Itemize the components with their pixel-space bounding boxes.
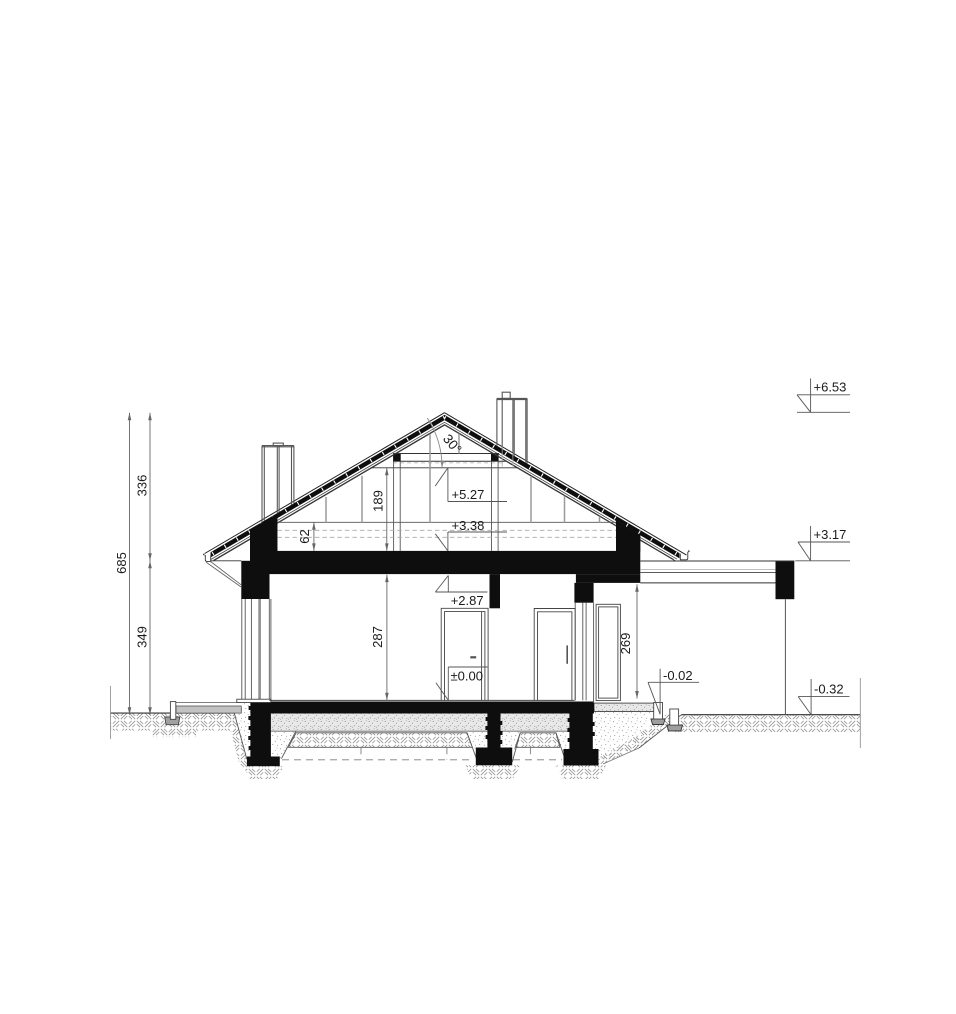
svg-text:287: 287 <box>370 626 385 648</box>
svg-text:269: 269 <box>618 633 633 655</box>
svg-text:336: 336 <box>135 475 150 497</box>
svg-text:+3.17: +3.17 <box>814 527 847 542</box>
svg-text:+6.53: +6.53 <box>814 380 847 395</box>
svg-text:+5.27: +5.27 <box>452 487 485 502</box>
svg-text:349: 349 <box>135 626 150 648</box>
svg-text:+2.87: +2.87 <box>451 593 484 608</box>
svg-text:62: 62 <box>297 529 312 543</box>
svg-text:-0.02: -0.02 <box>663 668 693 683</box>
svg-text:±0.00: ±0.00 <box>451 668 483 683</box>
svg-text:+3.38: +3.38 <box>452 518 485 533</box>
svg-text:189: 189 <box>371 490 386 512</box>
svg-text:-0.32: -0.32 <box>814 681 844 696</box>
svg-text:685: 685 <box>114 552 129 574</box>
